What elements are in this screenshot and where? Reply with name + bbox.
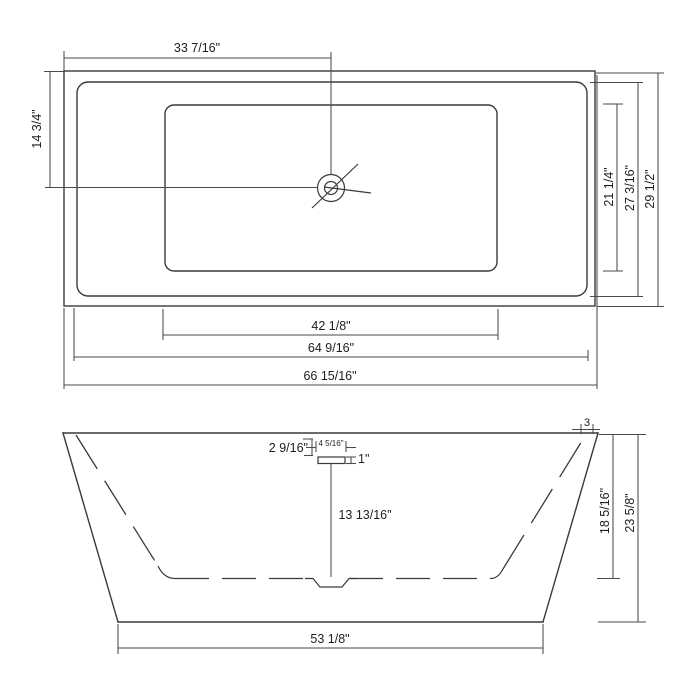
dim-flange-width: 4 5/16" <box>306 439 356 452</box>
outer-wall-left <box>63 433 118 622</box>
dim-basin-length: 42 1/8" <box>163 309 498 340</box>
dim-rim-thickness: 3 <box>572 417 600 434</box>
dim-label-rim-thickness: 3 <box>584 417 590 429</box>
drain-recess-notch <box>305 579 357 588</box>
dim-label-inner-depth: 18 5/16" <box>598 488 612 534</box>
dim-label-overall-length: 66 15/16" <box>303 369 356 383</box>
dim-flange-height: 1" <box>346 452 369 466</box>
top-view: 33 7/16" 14 3/4" 21 1/4" 27 3/16" 29 1/2 <box>30 41 664 389</box>
outer-wall-right <box>543 433 598 622</box>
dim-label-rim-to-flange: 2 9/16" <box>269 441 308 455</box>
technical-drawing-page: 33 7/16" 14 3/4" 21 1/4" 27 3/16" 29 1/2 <box>0 0 700 700</box>
dim-label-base-length: 53 1/8" <box>310 632 349 646</box>
dim-drain-from-left: 33 7/16" <box>64 41 331 175</box>
bathtub-drawing-svg: 33 7/16" 14 3/4" 21 1/4" 27 3/16" 29 1/2 <box>0 0 700 700</box>
dim-label-basin-width: 21 1/4" <box>602 167 616 206</box>
drain-flange-rect <box>318 457 345 464</box>
dim-label-drain-to-floor: 13 13/16" <box>338 508 391 522</box>
dim-drain-to-floor: 13 13/16" <box>331 464 392 578</box>
dim-label-overall-height: 23 5/8" <box>623 493 637 532</box>
dim-label-drain-from-top: 14 3/4" <box>30 109 44 148</box>
dim-label-drain-from-left: 33 7/16" <box>174 41 220 55</box>
dim-inner-depth: 18 5/16" <box>597 435 646 579</box>
dim-label-overall-width: 29 1/2" <box>643 169 657 208</box>
dim-label-basin-length: 42 1/8" <box>311 319 350 333</box>
dim-label-rim-width: 27 3/16" <box>623 165 637 211</box>
drain-symbol <box>312 164 371 208</box>
dim-label-flange-height: 1" <box>358 452 369 466</box>
dim-basin-width: 21 1/4" <box>602 104 623 271</box>
front-view: 2 9/16" 4 5/16" 1" 13 13/16" 3 <box>63 417 646 654</box>
dim-label-rim-length: 64 9/16" <box>308 341 354 355</box>
dim-base-length: 53 1/8" <box>118 624 543 654</box>
dim-label-flange-width: 4 5/16" <box>318 439 343 448</box>
dim-drain-from-top: 14 3/4" <box>30 71 318 188</box>
